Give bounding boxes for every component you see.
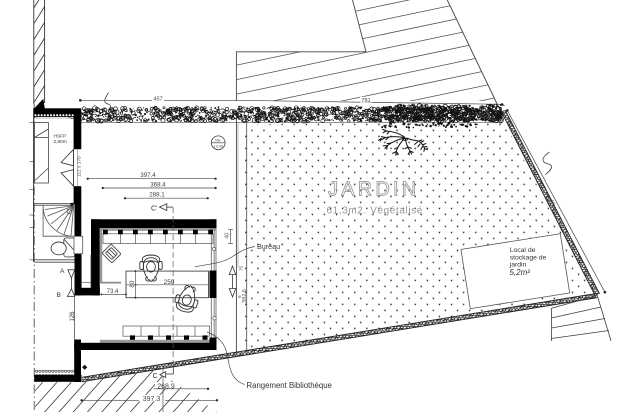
svg-text:Rangement Bibliothèque: Rangement Bibliothèque (247, 381, 332, 390)
svg-text:JARDIN: JARDIN (328, 179, 419, 201)
svg-text:397.4: 397.4 (140, 172, 156, 179)
svg-text:Local de: Local de (510, 247, 536, 254)
svg-text:80: 80 (129, 280, 136, 287)
svg-text:112 x 170: 112 x 170 (77, 156, 83, 177)
svg-text:C': C' (151, 206, 157, 213)
svg-text:5,2m²: 5,2m² (510, 268, 531, 277)
svg-text:368.4: 368.4 (150, 181, 166, 188)
svg-text:382.6: 382.6 (242, 289, 248, 303)
svg-text:126: 126 (70, 311, 76, 322)
svg-text:73.4: 73.4 (107, 289, 119, 295)
svg-text:61,3m2. Végétalisé: 61,3m2. Végétalisé (327, 206, 423, 217)
svg-text:457: 457 (153, 97, 162, 103)
svg-text:2,80m: 2,80m (54, 139, 67, 145)
svg-text:stockage de: stockage de (510, 254, 547, 261)
svg-text:268.9: 268.9 (157, 383, 175, 390)
svg-text:397.3: 397.3 (143, 396, 161, 403)
svg-text:288.1: 288.1 (149, 192, 165, 199)
svg-text:C: C (153, 373, 158, 380)
svg-text:HSFP: HSFP (54, 134, 67, 140)
svg-text:B: B (57, 292, 62, 299)
svg-text:40: 40 (225, 233, 231, 239)
svg-text:781: 781 (361, 98, 370, 104)
svg-text:Niv.: Niv. (215, 138, 221, 142)
svg-text:Bureau: Bureau (257, 242, 280, 251)
svg-text:6: 6 (237, 295, 242, 298)
svg-text:75: 75 (239, 265, 244, 271)
svg-text:± 0.00: ± 0.00 (213, 145, 223, 149)
svg-text:A: A (60, 268, 65, 275)
